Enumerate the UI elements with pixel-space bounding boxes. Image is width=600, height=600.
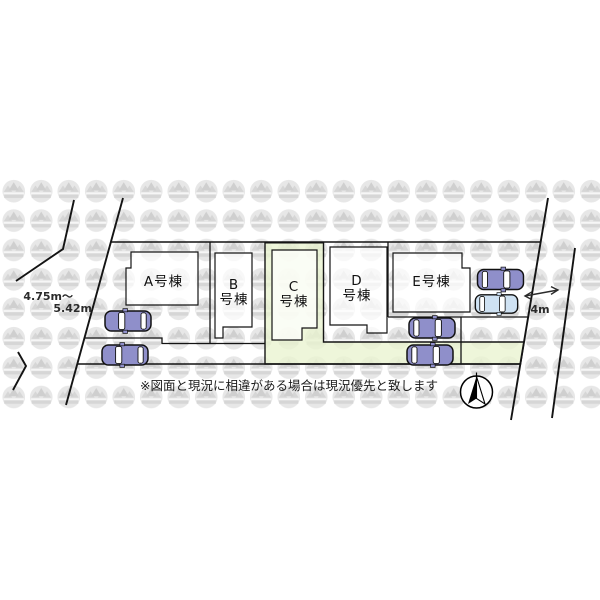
car-lot-d-row1 bbox=[409, 316, 455, 341]
building-c-label-line2: 号棟 bbox=[280, 294, 309, 310]
building-a-label: A号棟 bbox=[144, 274, 183, 290]
building-e-label: E号棟 bbox=[412, 274, 451, 290]
building-b-label-line1: B bbox=[229, 277, 239, 293]
building-d-label-line1: D bbox=[351, 273, 362, 289]
building-c-label-line1: C bbox=[289, 279, 299, 295]
site-plan-image: A号棟 B 号棟 C 号棟 D 号棟 E号棟 4.75m〜 5.42m 4m ※… bbox=[0, 0, 600, 600]
building-d-label-line2: 号棟 bbox=[343, 288, 372, 304]
building-b-label-line2: 号棟 bbox=[220, 292, 249, 308]
car-lot-e-row2 bbox=[475, 293, 517, 316]
car-lot-d-row2 bbox=[407, 343, 453, 368]
dimension-right-road: 4m bbox=[530, 303, 549, 316]
disclaimer-text: ※図面と現況に相違がある場合は現況優先と致します bbox=[140, 378, 438, 393]
car-lot-a-row2 bbox=[102, 343, 148, 368]
dimension-left-road-to: 5.42m bbox=[53, 302, 92, 315]
site-plan-svg: A号棟 B 号棟 C 号棟 D 号棟 E号棟 4.75m〜 5.42m 4m ※… bbox=[0, 0, 600, 600]
car-lot-e-row1 bbox=[478, 267, 524, 292]
car-lot-a-row1 bbox=[105, 309, 151, 334]
